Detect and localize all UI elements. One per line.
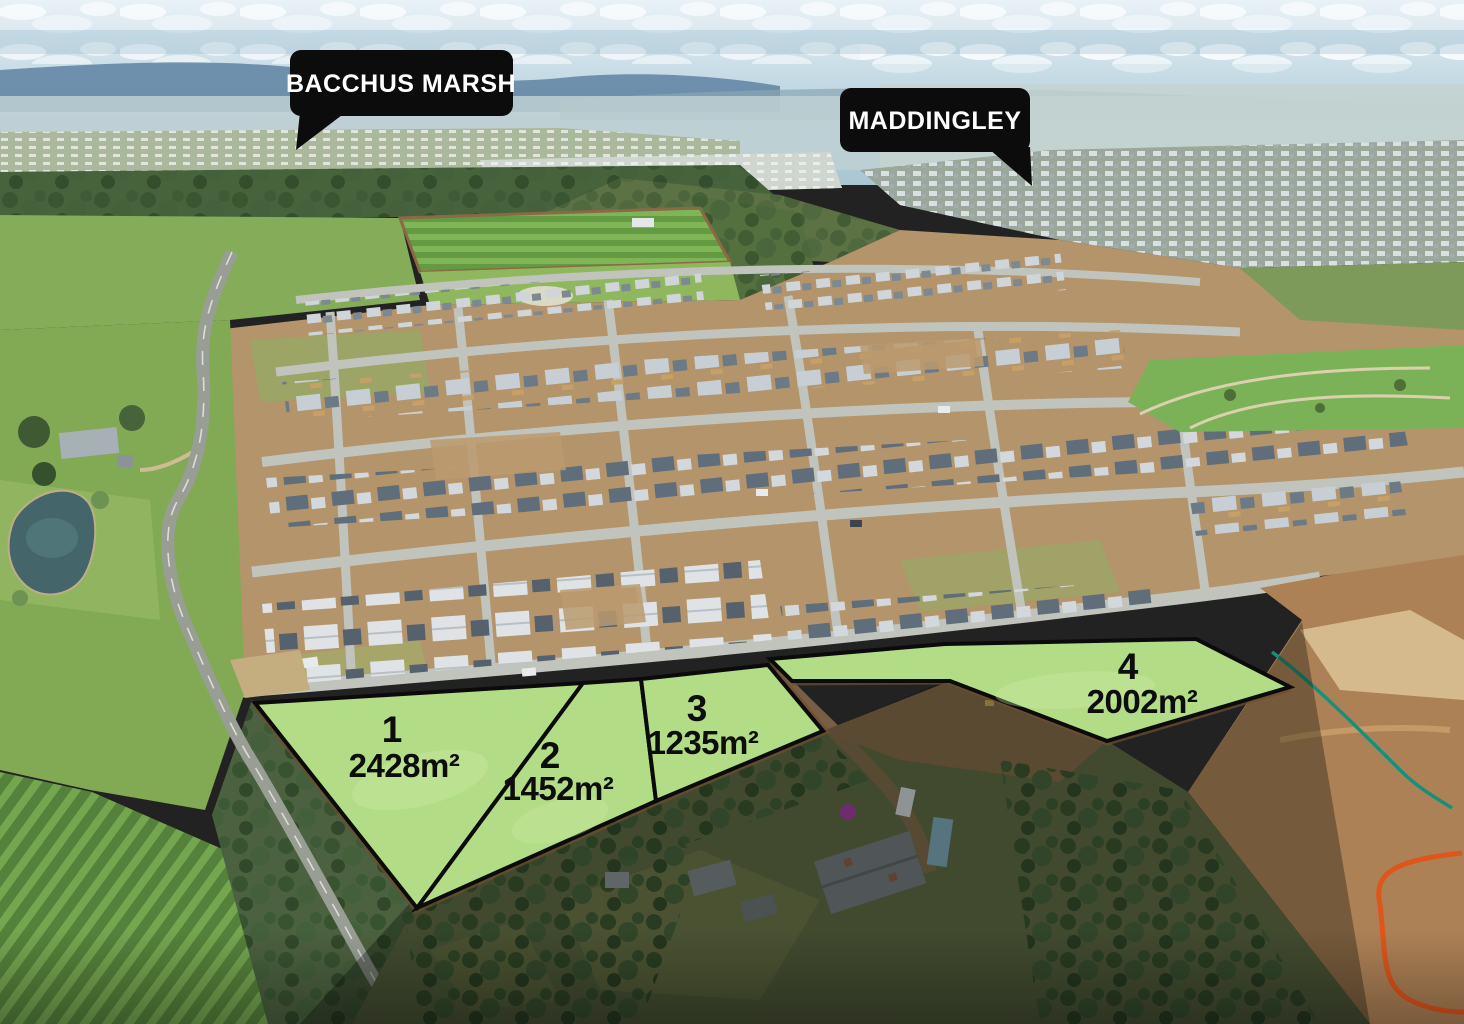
sky-streak [0,30,1464,54]
homestead-shed [118,455,134,467]
tree [18,416,50,448]
vacant-lot [560,584,646,630]
aerial-photo-canvas: 1 2428m² 2 1452m² 3 1235m² 4 2002m² BACC… [0,0,1464,1024]
park-tree [1224,389,1236,401]
park-tree [1315,403,1325,413]
lot-3-area-label: 1235m² [648,724,759,761]
aerial-photo: 1 2428m² 2 1452m² 3 1235m² 4 2002m² BACC… [0,0,1464,1024]
farm-shed [632,218,654,227]
pond-reeds [12,590,28,606]
bottom-vignette [0,930,1464,1024]
lot-1-area-label: 2428m² [349,747,460,784]
tree [119,405,145,431]
car [756,489,768,496]
car [522,667,537,676]
pond-reeds [91,491,109,509]
pond-highlight [26,518,78,558]
car [850,520,862,527]
lot-3-number: 3 [687,688,708,729]
tree [32,462,56,486]
callout-bacchus-marsh-label: BACCHUS MARSH [286,70,516,98]
market-garden [400,208,730,272]
lot-1-number: 1 [382,709,403,750]
lot-4-area-label: 2002m² [1087,683,1198,720]
lot-2-area-label: 1452m² [503,770,614,807]
lot-4-number: 4 [1118,646,1139,687]
park-tree [1394,379,1406,391]
callout-maddingley-label: MADDINGLEY [848,107,1021,135]
car [938,406,950,413]
